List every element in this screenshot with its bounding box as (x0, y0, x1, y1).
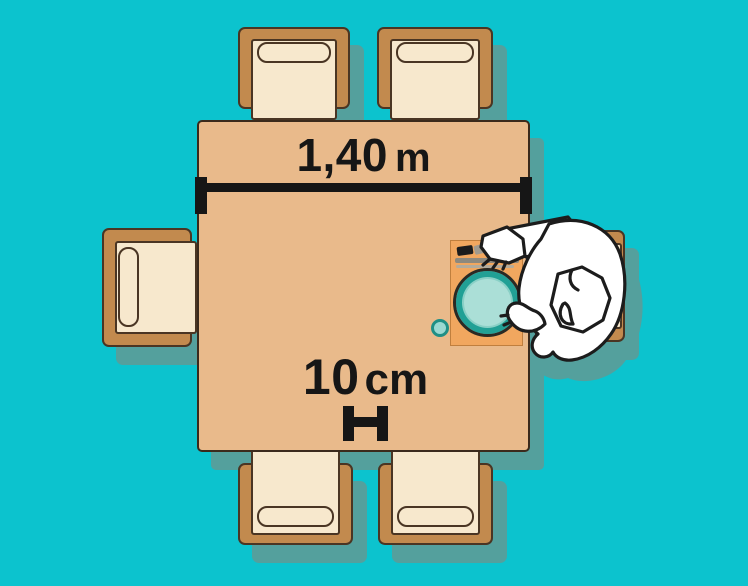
width-dimension-cap-left (195, 177, 207, 214)
width-dimension-label: 1,40 m (197, 128, 530, 182)
chair-backrest (397, 506, 474, 527)
chair-backrest (396, 42, 474, 63)
chair-backrest (257, 42, 331, 63)
table-plan-diagram: 1,40 m 10 cm (0, 0, 748, 586)
width-value: 1,40 (296, 128, 388, 182)
margin-dimension-label: 10 cm (283, 348, 448, 406)
chair-backrest (257, 506, 334, 527)
margin-unit: cm (365, 355, 429, 405)
margin-value: 10 (303, 348, 360, 406)
margin-marker-bar (343, 417, 388, 427)
glass (431, 319, 449, 337)
width-dimension-cap-right (520, 177, 532, 214)
width-dimension-line (195, 183, 532, 192)
width-unit: m (395, 136, 431, 181)
person-head (551, 267, 610, 332)
chair-backrest (118, 247, 139, 327)
person (452, 212, 632, 372)
